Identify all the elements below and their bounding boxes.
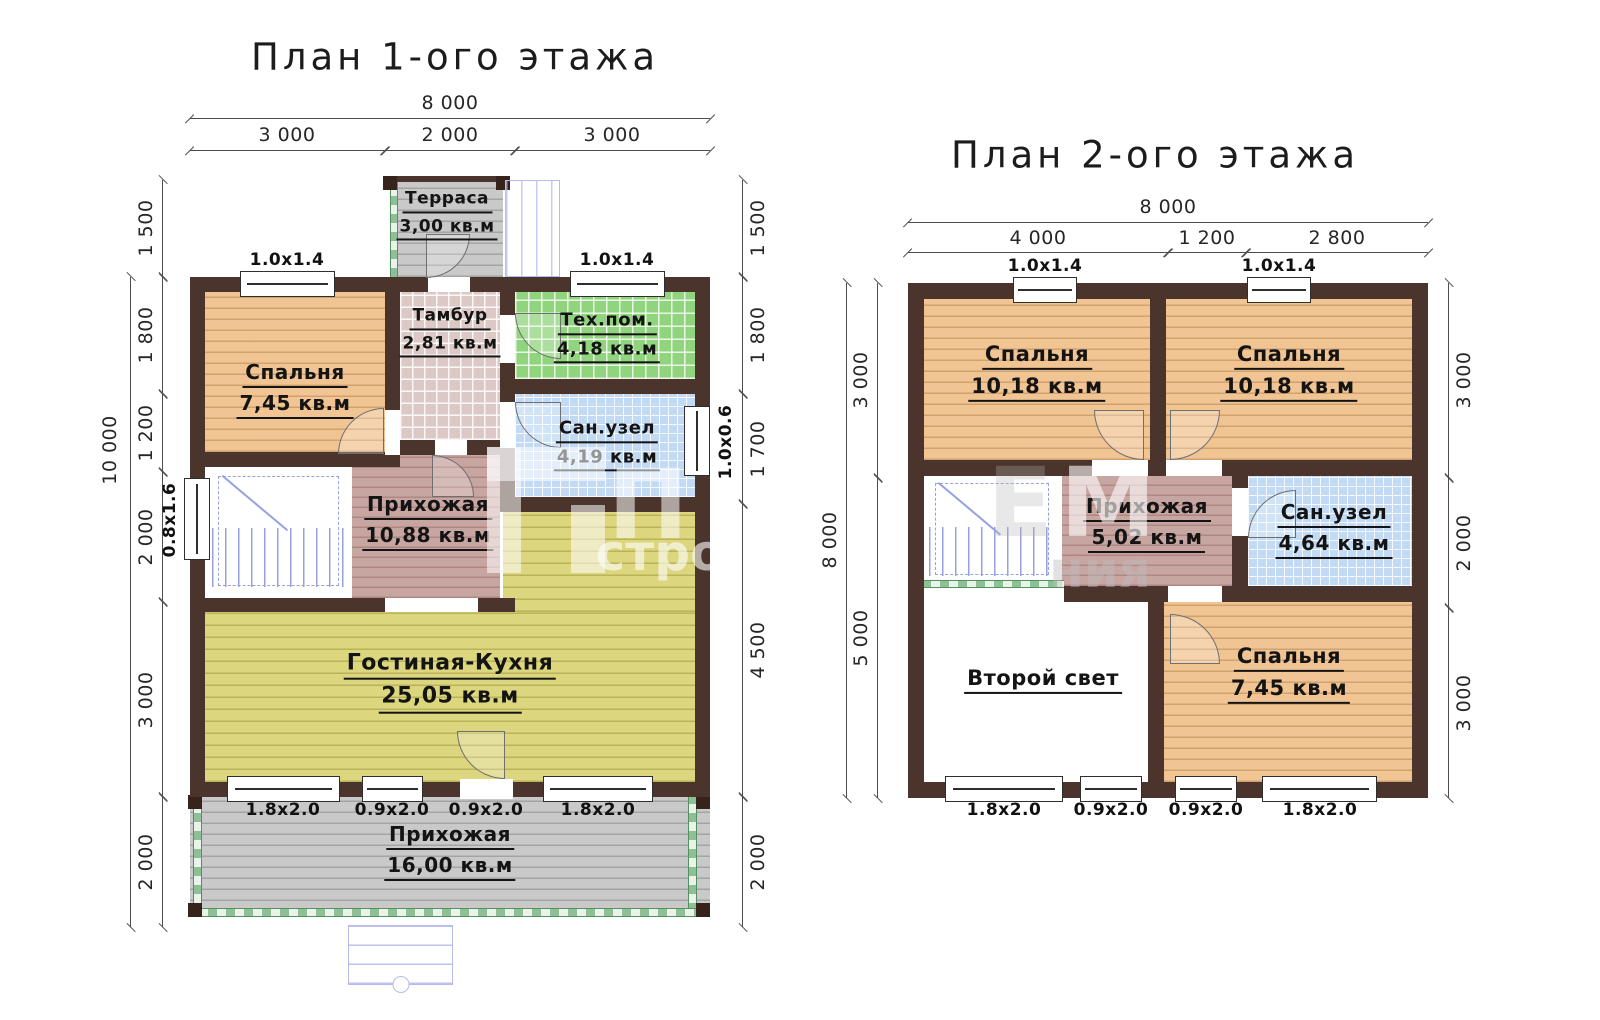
dim-line bbox=[1168, 252, 1246, 253]
dim-5000: 5 000 bbox=[850, 610, 872, 667]
label-hall-1f: Прихожая10,88 кв.м bbox=[362, 491, 493, 553]
room-label-line: Прихожая bbox=[364, 493, 492, 520]
window-1.8x2.0 bbox=[1262, 776, 1377, 802]
porch-post bbox=[188, 795, 202, 809]
label-bedroom-2f-small: Спальня7,45 кв.м bbox=[1228, 642, 1350, 706]
dim-2000: 2 000 bbox=[135, 834, 157, 891]
porch-post bbox=[696, 795, 710, 809]
window-0.9x2.0 bbox=[1175, 776, 1237, 802]
interior-wall bbox=[1222, 586, 1412, 602]
dim-4500: 4 500 bbox=[747, 622, 769, 679]
dim-1500: 1 500 bbox=[135, 200, 157, 257]
label-tehpom: Тех.пом.4,18 кв.м bbox=[554, 308, 660, 365]
dim-line bbox=[1448, 608, 1449, 798]
dim-line bbox=[742, 504, 743, 797]
winsize-0.9x2.0: 0.9x2.0 bbox=[355, 800, 430, 820]
room-label-line: Тех.пом. bbox=[557, 310, 656, 335]
winsize-1.8x2.0: 1.8x2.0 bbox=[967, 800, 1042, 820]
dim-line bbox=[742, 277, 743, 394]
winsize-1.8x2.0: 1.8x2.0 bbox=[561, 800, 636, 820]
dim-line bbox=[190, 118, 710, 119]
dim-8000: 8 000 bbox=[1140, 196, 1197, 218]
exterior-wall bbox=[908, 283, 1428, 299]
label-living-kitchen: Гостиная-Кухня25,05 кв.м bbox=[344, 649, 556, 716]
window-1.0x1.4 bbox=[1013, 277, 1077, 303]
dim-2800: 2 800 bbox=[1309, 227, 1366, 249]
label-bedroom-2f-right: Спальня10,18 кв.м bbox=[1220, 340, 1357, 404]
watermark-letter: Е bbox=[987, 447, 1053, 559]
window-1.8x2.0 bbox=[227, 776, 340, 802]
label-second-light: Второй свет bbox=[964, 664, 1122, 696]
winsize-1.8x2.0: 1.8x2.0 bbox=[1283, 800, 1358, 820]
room-label-line: Сан.узел bbox=[1278, 501, 1390, 528]
dim-line bbox=[130, 277, 131, 927]
room-label-line: Второй свет bbox=[964, 666, 1122, 694]
exterior-wall bbox=[908, 283, 924, 798]
room-label-line: 2,81 кв.м bbox=[399, 334, 500, 358]
dim-3000: 3 000 bbox=[850, 352, 872, 409]
door-opening bbox=[385, 410, 400, 455]
dim-line bbox=[1246, 252, 1428, 253]
label-porch: Прихожая16,00 кв.м bbox=[384, 821, 515, 883]
dim-3000: 3 000 bbox=[259, 124, 316, 146]
dim-3000: 3 000 bbox=[135, 672, 157, 729]
exterior-wall bbox=[1412, 283, 1428, 798]
stairs-edge-strip bbox=[922, 580, 1064, 588]
room-label-line: Сан.узел bbox=[556, 418, 658, 443]
passage-opening bbox=[385, 598, 478, 612]
dim-line bbox=[162, 277, 163, 394]
room-label-line: Спальня bbox=[1234, 342, 1344, 370]
interior-wall bbox=[1150, 299, 1166, 460]
floor-plan-canvas: План 1-ого этажа План 2-ого этажа Террас… bbox=[0, 0, 1600, 1020]
dim-1500: 1 500 bbox=[747, 200, 769, 257]
terrace-top-edge bbox=[383, 176, 510, 182]
winsize-1.8x2.0: 1.8x2.0 bbox=[246, 800, 321, 820]
winsize-0.9x2.0: 0.9x2.0 bbox=[1074, 800, 1149, 820]
dim-1800: 1 800 bbox=[135, 307, 157, 364]
dim-2000: 2 000 bbox=[1453, 515, 1475, 572]
dim-1800: 1 800 bbox=[747, 307, 769, 364]
winsize-1.0x1.4: 1.0x1.4 bbox=[1242, 256, 1317, 276]
dim-8000: 8 000 bbox=[819, 512, 841, 569]
winsize-1.0x0.6: 1.0x0.6 bbox=[716, 405, 736, 480]
entrance-steps bbox=[348, 925, 453, 985]
label-bedroom-1f: Спальня7,45 кв.м bbox=[237, 359, 354, 421]
room-label-line: 3,00 кв.м bbox=[396, 217, 497, 241]
room-label-line: 10,88 кв.м bbox=[362, 524, 493, 551]
dim-line bbox=[908, 222, 1428, 223]
door-opening bbox=[1168, 590, 1222, 602]
door-opening bbox=[500, 402, 515, 448]
winsize-1.0x1.4: 1.0x1.4 bbox=[1008, 256, 1083, 276]
door-opening bbox=[500, 315, 515, 363]
room-label-line: Спальня bbox=[982, 342, 1092, 370]
door-opening bbox=[428, 277, 470, 292]
dim-3000: 3 000 bbox=[1453, 352, 1475, 409]
winsize-0.9x2.0: 0.9x2.0 bbox=[449, 800, 524, 820]
window-0.9x2.0 bbox=[1080, 776, 1142, 802]
door-opening bbox=[1232, 488, 1248, 536]
dim-line bbox=[385, 150, 515, 151]
room-label-line: Спальня bbox=[1234, 644, 1344, 672]
door-opening bbox=[1166, 462, 1222, 474]
entrance-door-opening bbox=[460, 779, 513, 799]
dim-2000: 2 000 bbox=[135, 509, 157, 566]
dim-4000: 4 000 bbox=[1010, 227, 1067, 249]
window-1.8x2.0 bbox=[543, 776, 653, 802]
dim-line bbox=[742, 394, 743, 504]
dim-line bbox=[1448, 283, 1449, 478]
dim-line bbox=[162, 797, 163, 927]
dim-line bbox=[742, 180, 743, 277]
winsize-0.9x2.0: 0.9x2.0 bbox=[1169, 800, 1244, 820]
dim-line bbox=[877, 478, 878, 798]
interior-wall bbox=[478, 598, 515, 612]
label-tambur: Тамбур2,81 кв.м bbox=[399, 304, 500, 359]
room-label-line: 7,45 кв.м bbox=[237, 392, 354, 419]
terrace-post bbox=[383, 176, 397, 190]
porch-deck-edge bbox=[193, 797, 202, 912]
interior-wall bbox=[1222, 460, 1412, 476]
interior-wall bbox=[205, 452, 400, 467]
dim-line bbox=[162, 180, 163, 277]
dim-line bbox=[908, 252, 1168, 253]
terrace-outdoor-stairs bbox=[505, 180, 560, 277]
watermark-subtitle: стро bbox=[596, 524, 725, 582]
label-bedroom-2f-left: Спальня10,18 кв.м bbox=[968, 340, 1105, 404]
dim-1700: 1 700 bbox=[747, 421, 769, 478]
dim-line bbox=[515, 150, 710, 151]
label-sanuzel-2f: Сан.узел4,64 кв.м bbox=[1276, 499, 1393, 561]
room-label-line: 4,64 кв.м bbox=[1276, 532, 1393, 559]
stair-diagonal bbox=[222, 475, 288, 531]
porch-post bbox=[188, 903, 202, 917]
interior-wall bbox=[205, 598, 385, 612]
plan2-title: План 2-ого этажа bbox=[951, 134, 1359, 177]
room-label-line: Спальня bbox=[242, 361, 347, 388]
dim-2000: 2 000 bbox=[747, 834, 769, 891]
room-label-line: Прихожая bbox=[386, 823, 514, 850]
stairs-1f bbox=[205, 467, 352, 595]
room-label-line: Терраса bbox=[402, 189, 492, 213]
window-1.0x1.4 bbox=[1247, 277, 1311, 303]
dim-3000: 3 000 bbox=[584, 124, 641, 146]
dim-line bbox=[877, 283, 878, 478]
dim-line bbox=[190, 150, 385, 151]
porch-deck-edge bbox=[688, 797, 697, 912]
window-1.0x1.4 bbox=[570, 271, 665, 297]
dim-line bbox=[162, 394, 163, 472]
dim-10000: 10 000 bbox=[99, 415, 121, 484]
room-label-line: 10,18 кв.м bbox=[968, 374, 1105, 402]
window-0.8x1.6 bbox=[184, 478, 210, 560]
label-terrace: Терраса3,00 кв.м bbox=[396, 187, 497, 242]
dim-line bbox=[742, 797, 743, 927]
room-label-line: 16,00 кв.м bbox=[384, 854, 515, 881]
interior-wall bbox=[515, 379, 695, 394]
room-label-line: 25,05 кв.м bbox=[378, 684, 521, 713]
dim-2000: 2 000 bbox=[422, 124, 479, 146]
dim-line bbox=[1448, 478, 1449, 608]
winsize-0.8x1.6: 0.8x1.6 bbox=[160, 483, 180, 558]
winsize-1.0x1.4: 1.0x1.4 bbox=[580, 250, 655, 270]
dim-line bbox=[846, 283, 847, 798]
winsize-1.0x1.4: 1.0x1.4 bbox=[250, 250, 325, 270]
room-label-line: 4,18 кв.м bbox=[554, 339, 660, 364]
room-label-line: 7,45 кв.м bbox=[1228, 676, 1350, 704]
interior-wall bbox=[1148, 602, 1164, 782]
room-label-line: Гостиная-Кухня bbox=[344, 651, 556, 680]
window-0.9x2.0 bbox=[362, 776, 423, 802]
room-label-line: Тамбур bbox=[409, 306, 490, 330]
porch-post bbox=[696, 903, 710, 917]
dim-3000: 3 000 bbox=[1453, 675, 1475, 732]
watermark-logo bbox=[487, 447, 521, 573]
room-label-line: 10,18 кв.м bbox=[1220, 374, 1357, 402]
dim-line bbox=[162, 602, 163, 797]
porch-deck-edge bbox=[190, 908, 710, 917]
window-1.8x2.0 bbox=[945, 776, 1063, 802]
window-1.0x1.4 bbox=[240, 271, 335, 297]
door-opening bbox=[435, 440, 467, 455]
plan1-title: План 1-ого этажа bbox=[251, 36, 659, 79]
watermark-subtitle: ния bbox=[1049, 541, 1151, 599]
dim-1200: 1 200 bbox=[1179, 227, 1236, 249]
dim-8000: 8 000 bbox=[422, 92, 479, 114]
dim-1200: 1 200 bbox=[135, 405, 157, 462]
